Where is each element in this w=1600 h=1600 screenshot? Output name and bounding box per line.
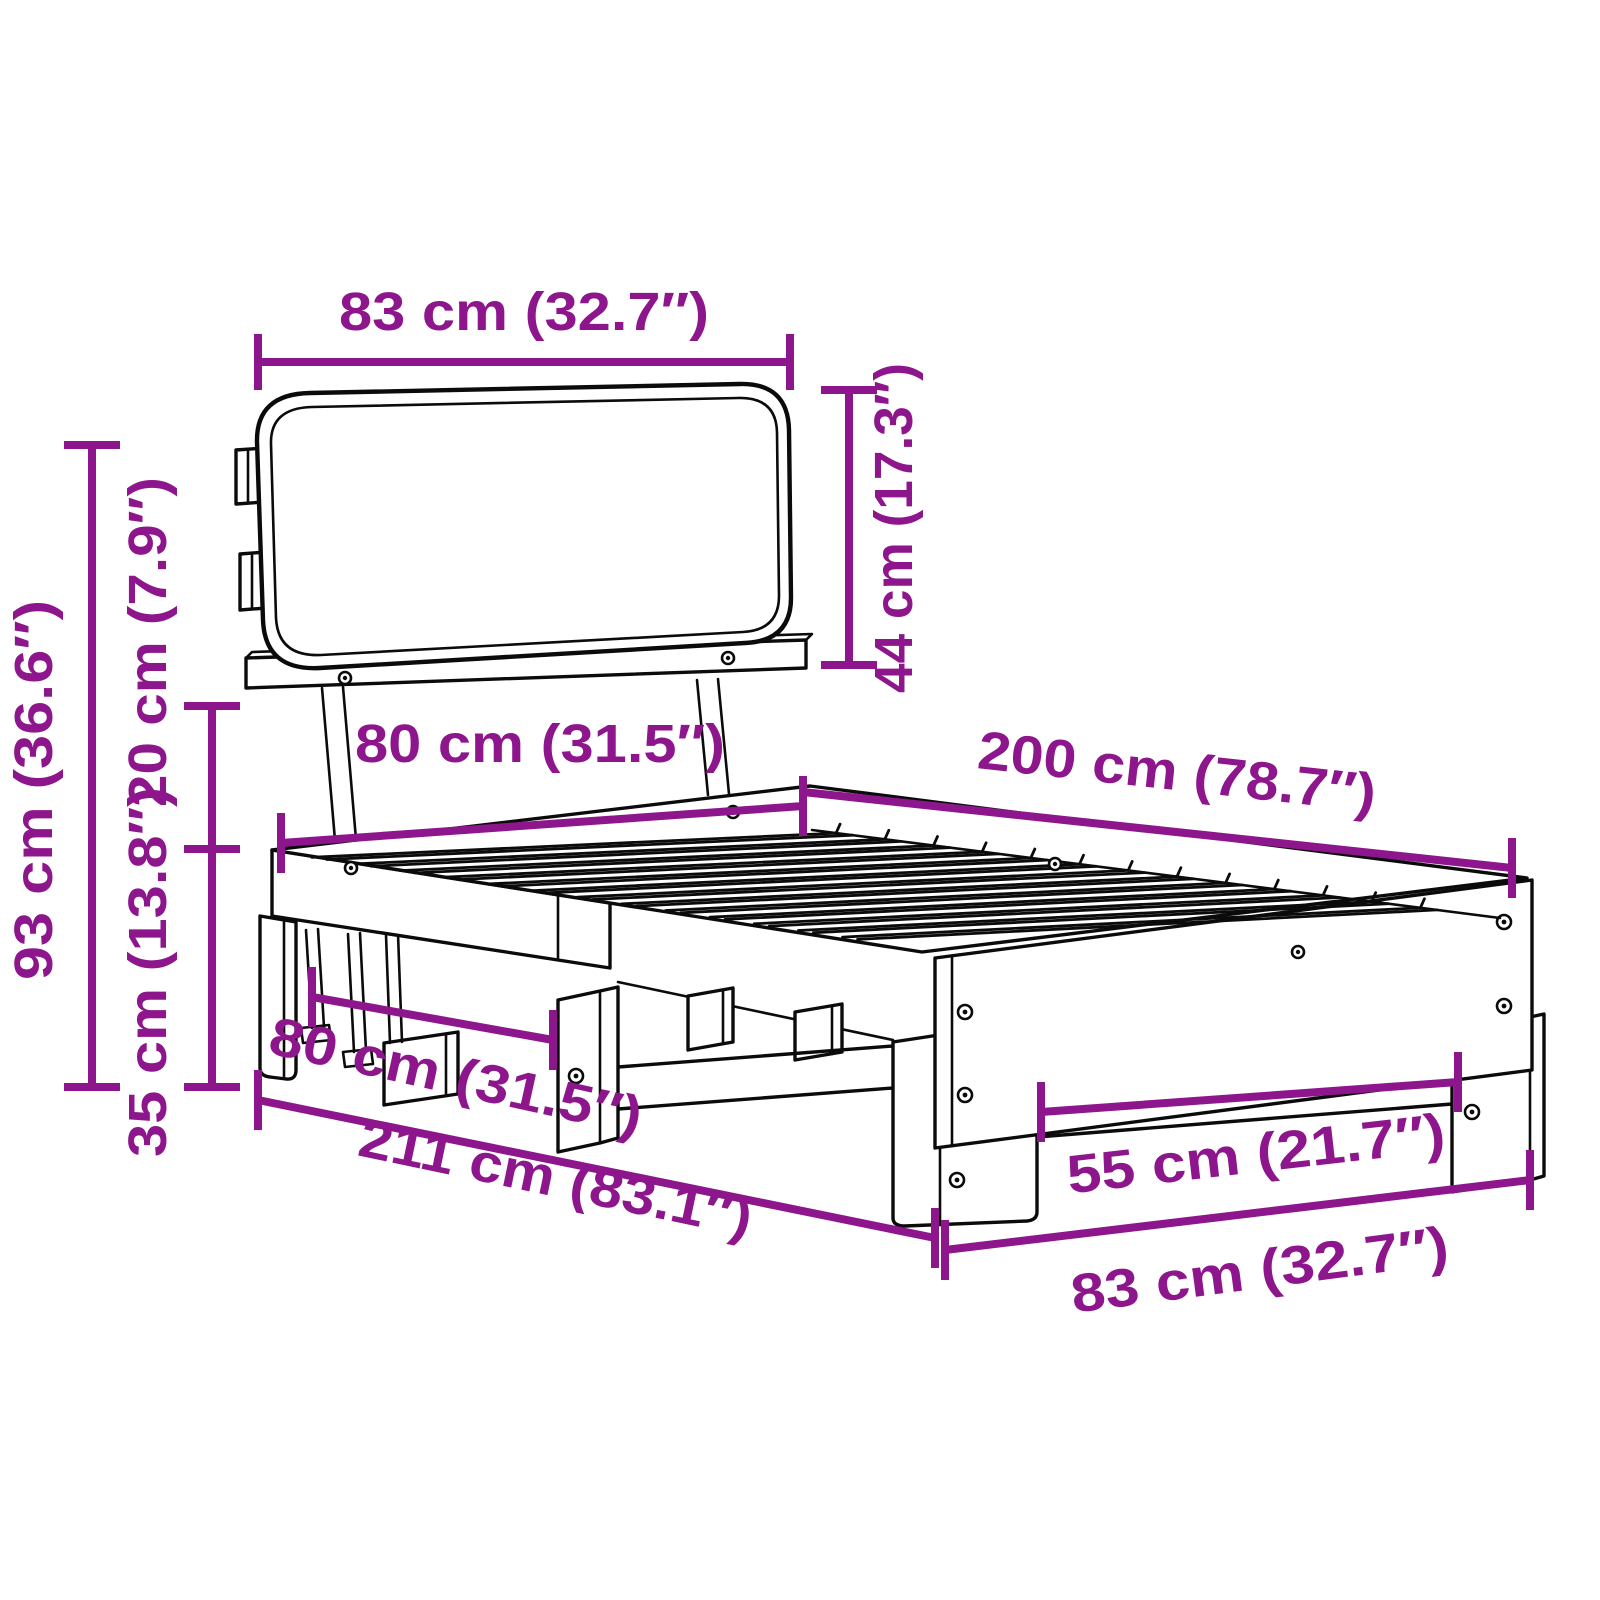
dim-headboard-gap-label: 20 cm (7.9″) — [118, 477, 178, 807]
dim-headboard-gap-and-frame-height: 20 cm (7.9″) 35 cm (13.8″) — [118, 477, 240, 1157]
dim-total-height: 93 cm (36.6″) — [4, 445, 120, 1087]
headboard-cushion — [257, 384, 791, 668]
diagram-canvas: 83 cm (32.7″) 44 cm (17.3″) 93 cm (36.6″… — [0, 0, 1600, 1600]
dim-bed-width-top-label: 80 cm (31.5″) — [355, 714, 725, 774]
headboard — [236, 384, 812, 688]
bed-frame-dimension-diagram: 83 cm (32.7″) 44 cm (17.3″) 93 cm (36.6″… — [0, 0, 1600, 1600]
dim-bed-length-top-label: 200 cm (78.7″) — [975, 720, 1379, 824]
dim-headboard-height-label: 44 cm (17.3″) — [864, 363, 924, 693]
dim-headboard-width-label: 83 cm (32.7″) — [339, 282, 709, 342]
slat-support-blocks — [688, 988, 842, 1060]
under-deck-edge — [618, 982, 893, 1040]
dim-frame-height-label: 35 cm (13.8″) — [118, 787, 178, 1157]
dim-total-height-label: 93 cm (36.6″) — [4, 600, 64, 980]
dim-headboard-width: 83 cm (32.7″) — [258, 282, 790, 390]
dim-headboard-height: 44 cm (17.3″) — [821, 363, 924, 693]
